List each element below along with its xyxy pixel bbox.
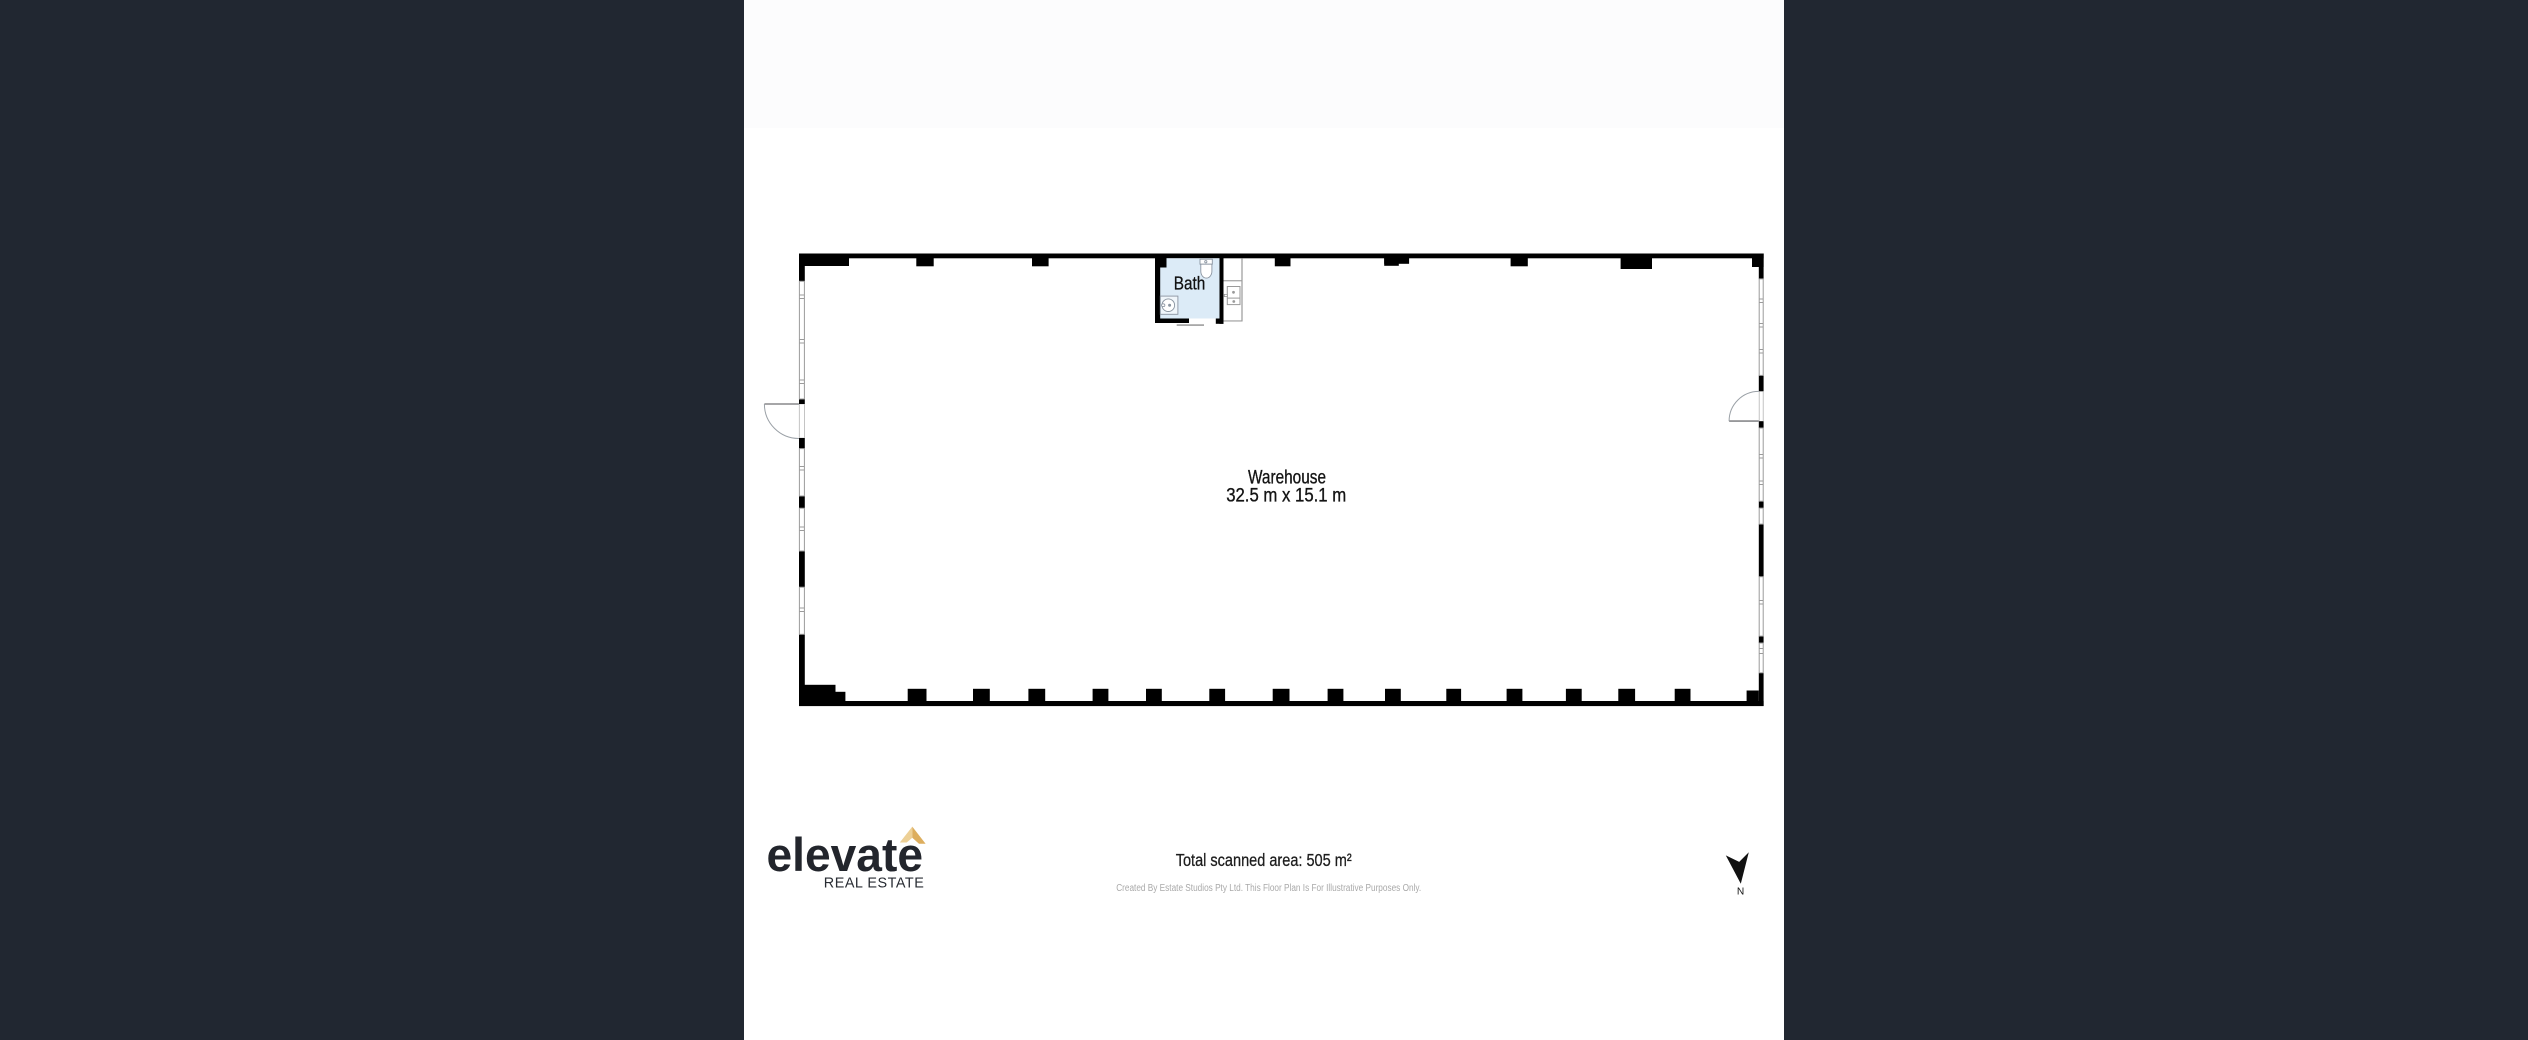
svg-text:32.5 m x 15.1 m: 32.5 m x 15.1 m bbox=[1226, 485, 1346, 507]
svg-text:REAL ESTATE: REAL ESTATE bbox=[824, 876, 924, 892]
svg-text:N: N bbox=[1737, 887, 1744, 898]
svg-text:elevate: elevate bbox=[767, 828, 924, 881]
svg-text:Created By Estate Studios Pty: Created By Estate Studios Pty Ltd. This … bbox=[1116, 883, 1421, 894]
svg-text:Total scanned area: 505 m²: Total scanned area: 505 m² bbox=[1176, 850, 1352, 870]
svg-text:Bath: Bath bbox=[1174, 273, 1206, 294]
